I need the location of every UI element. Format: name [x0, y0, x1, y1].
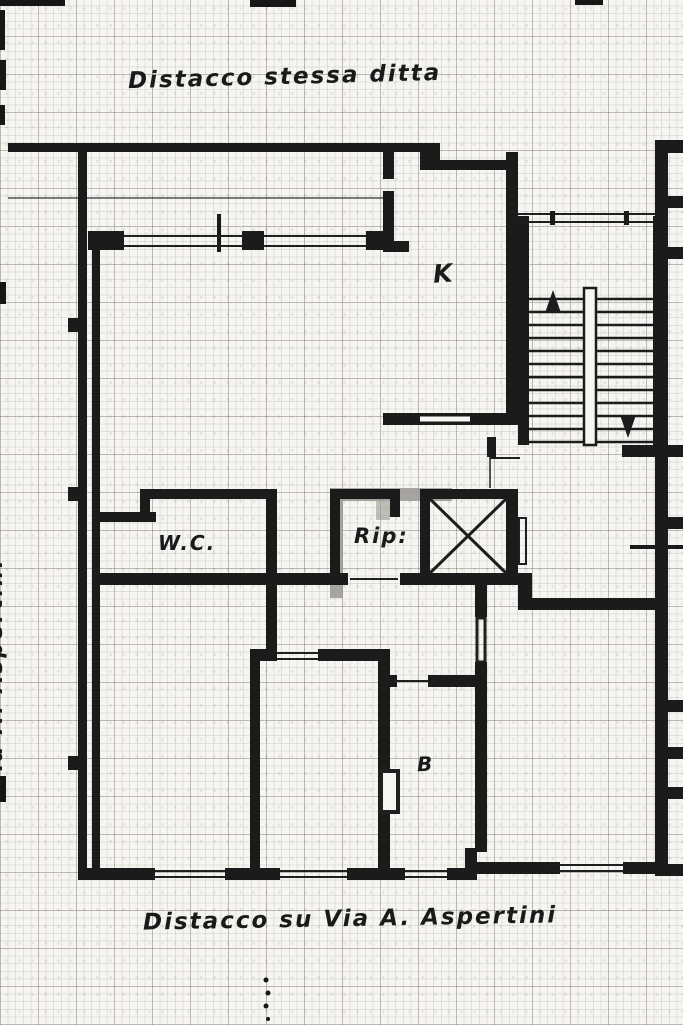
wall-bath-top [428, 675, 478, 687]
room-label-bathroom: B [417, 754, 435, 775]
room-label-kitchen: K [432, 260, 455, 286]
walls [8, 140, 683, 880]
bottom-dots [264, 978, 269, 983]
wall-kitchen-right [506, 152, 518, 425]
room-label-storage: Rip: [354, 526, 409, 547]
floor-plan-drawing [0, 0, 683, 1025]
room-label-wc: W.C. [158, 533, 216, 553]
wall-storage-top [330, 489, 400, 499]
wall-kitchen-left [383, 143, 394, 179]
wall-storage-left [330, 489, 340, 585]
wall-top [8, 143, 432, 152]
wall-right-unit [655, 140, 668, 876]
elevator-shaft [430, 499, 506, 573]
left-vertical-caption: Via A. Aspertini [0, 430, 6, 790]
scanned-floor-plan-page: Distacco stessa ditta Distacco su Via A.… [0, 0, 683, 1025]
staircase [529, 288, 653, 445]
bath-door-jamb [381, 771, 398, 812]
stair-up-arrow [545, 290, 561, 313]
wall-stair-left [518, 216, 529, 445]
stair-stringer [584, 288, 596, 445]
wall-bottom [78, 868, 155, 880]
stair-down-arrow [620, 415, 636, 438]
wall-bath-left [378, 649, 390, 868]
